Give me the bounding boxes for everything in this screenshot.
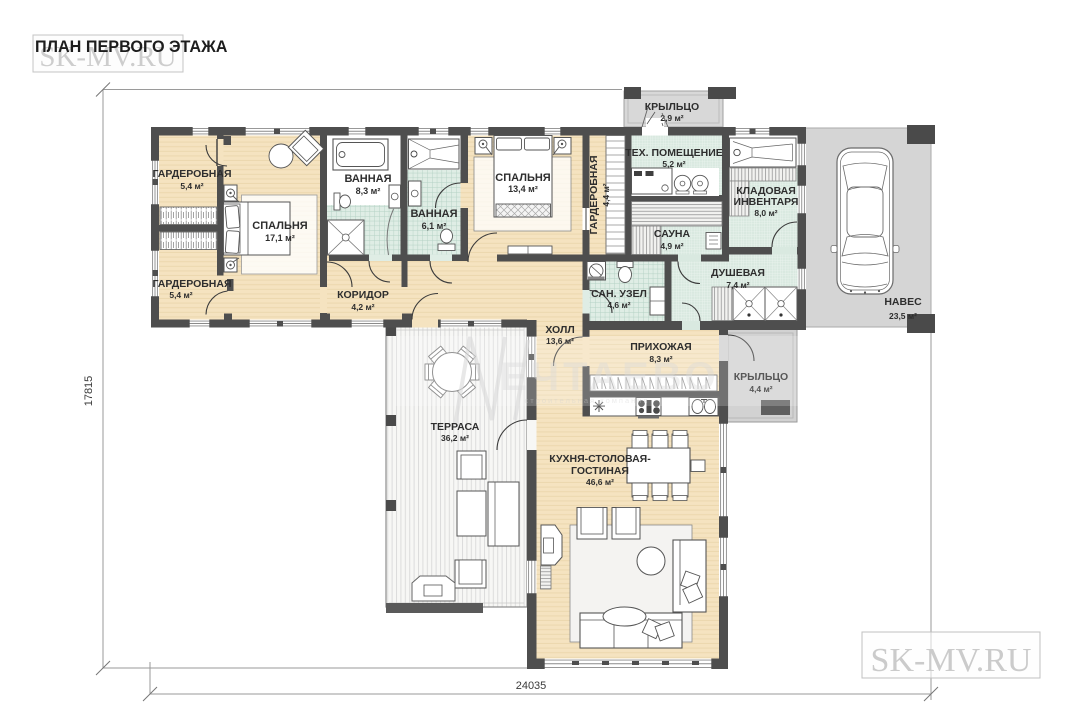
svg-text:ГАРДЕРОБНАЯ: ГАРДЕРОБНАЯ (153, 168, 232, 180)
svg-text:5,4 м²: 5,4 м² (169, 290, 192, 300)
svg-text:13,4 м²: 13,4 м² (508, 184, 538, 194)
svg-text:17815: 17815 (83, 376, 95, 407)
svg-text:КРЫЛЬЦО: КРЫЛЬЦО (645, 101, 699, 113)
svg-text:5,4 м²: 5,4 м² (180, 181, 203, 191)
svg-text:ТЕРРАСА: ТЕРРАСА (431, 421, 480, 433)
svg-text:ВАННАЯ: ВАННАЯ (344, 173, 391, 185)
svg-text:ДУШЕВАЯ: ДУШЕВАЯ (711, 267, 765, 279)
svg-text:ГАРДЕРОБНАЯ: ГАРДЕРОБНАЯ (588, 156, 600, 235)
svg-text:НАВЕС: НАВЕС (884, 296, 922, 308)
svg-text:4,9 м²: 4,9 м² (660, 241, 683, 251)
svg-text:СПАЛЬНЯ: СПАЛЬНЯ (495, 172, 550, 184)
svg-text:17,1 м²: 17,1 м² (265, 233, 295, 243)
svg-text:4,4 м²: 4,4 м² (601, 183, 611, 206)
svg-text:КУХНЯ-СТОЛОВАЯ-: КУХНЯ-СТОЛОВАЯ- (549, 453, 651, 465)
svg-text:SK-MV.RU: SK-MV.RU (871, 642, 1032, 679)
svg-text:36,2 м²: 36,2 м² (441, 433, 469, 443)
svg-text:7,4 м²: 7,4 м² (726, 280, 749, 290)
svg-text:8,3 м²: 8,3 м² (649, 354, 672, 364)
svg-text:ЕЧТАЕВО: ЕЧТАЕВО (500, 355, 719, 399)
svg-text:ВАННАЯ: ВАННАЯ (410, 208, 457, 220)
svg-text:13,6 м²: 13,6 м² (546, 336, 574, 346)
svg-text:23,5 м²: 23,5 м² (889, 311, 917, 321)
svg-text:8,3 м²: 8,3 м² (356, 186, 381, 196)
svg-text:ГОСТИНАЯ: ГОСТИНАЯ (571, 465, 629, 477)
svg-text:СПАЛЬНЯ: СПАЛЬНЯ (252, 220, 307, 232)
svg-text:ПРИХОЖАЯ: ПРИХОЖАЯ (630, 341, 691, 353)
svg-text:ГАРДЕРОБНАЯ: ГАРДЕРОБНАЯ (153, 278, 232, 290)
svg-text:24035: 24035 (516, 680, 547, 692)
svg-text:ХОЛЛ: ХОЛЛ (545, 324, 574, 336)
svg-text:ИНВЕНТАРЯ: ИНВЕНТАРЯ (734, 196, 799, 208)
svg-text:8,0 м²: 8,0 м² (754, 208, 777, 218)
svg-text:5,2 м²: 5,2 м² (662, 159, 685, 169)
svg-text:6,1 м²: 6,1 м² (422, 221, 447, 231)
svg-text:4,6 м²: 4,6 м² (607, 300, 630, 310)
svg-text:ТЕХ. ПОМЕЩЕНИЕ: ТЕХ. ПОМЕЩЕНИЕ (625, 147, 723, 159)
svg-text:САУНА: САУНА (654, 228, 691, 240)
svg-text:САН. УЗЕЛ: САН. УЗЕЛ (591, 288, 647, 300)
svg-text:КОРИДОР: КОРИДОР (337, 289, 389, 301)
svg-text:ПЛАН ПЕРВОГО ЭТАЖА: ПЛАН ПЕРВОГО ЭТАЖА (35, 38, 228, 56)
svg-text:4,2 м²: 4,2 м² (351, 302, 374, 312)
svg-text:строительная компания: строительная компания (524, 396, 649, 405)
svg-text:46,6 м²: 46,6 м² (586, 477, 614, 487)
